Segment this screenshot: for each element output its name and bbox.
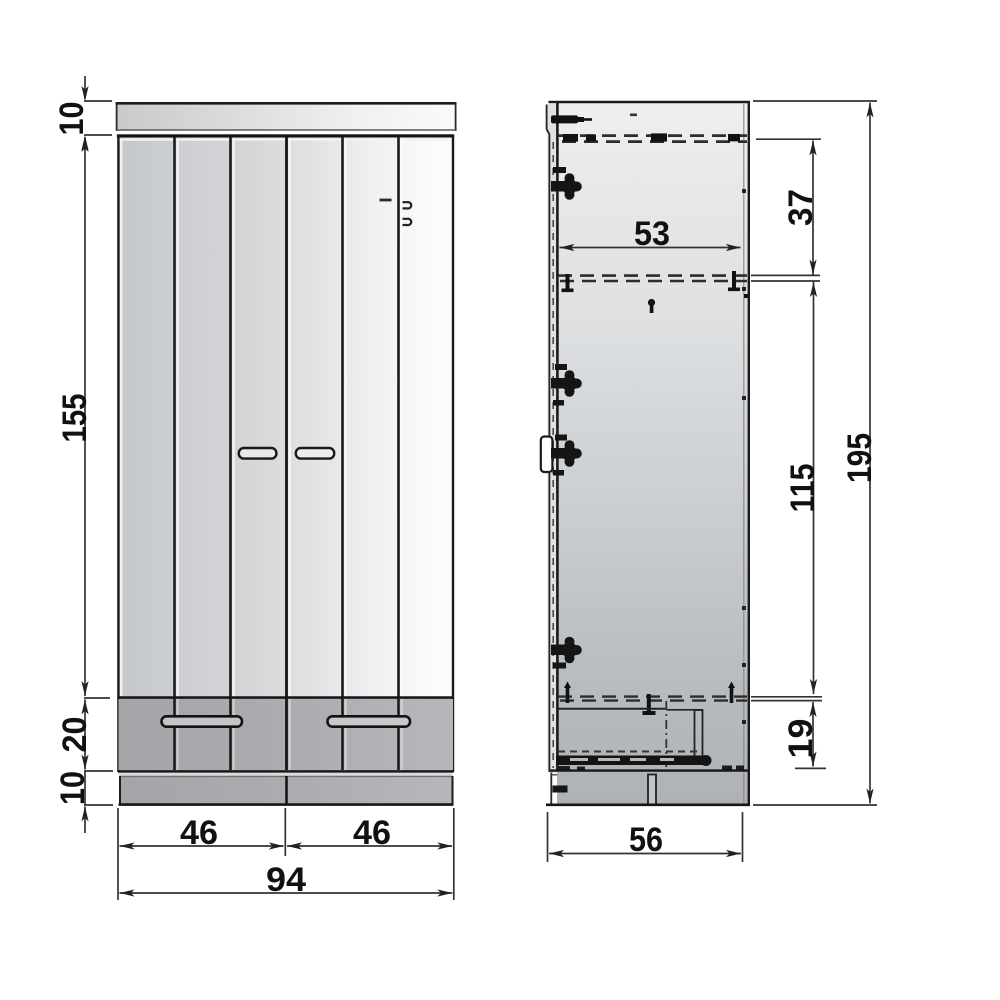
svg-text:155: 155 (56, 394, 94, 443)
svg-text:10: 10 (53, 102, 91, 136)
svg-text:46: 46 (353, 814, 391, 852)
svg-text:53: 53 (634, 215, 670, 253)
svg-text:46: 46 (180, 814, 218, 852)
svg-text:10: 10 (54, 771, 92, 805)
svg-text:37: 37 (782, 189, 820, 226)
svg-text:195: 195 (841, 433, 879, 483)
svg-text:56: 56 (629, 821, 663, 859)
svg-text:94: 94 (266, 861, 306, 899)
svg-text:115: 115 (784, 464, 822, 513)
svg-text:19: 19 (782, 719, 820, 759)
svg-text:20: 20 (56, 717, 94, 753)
